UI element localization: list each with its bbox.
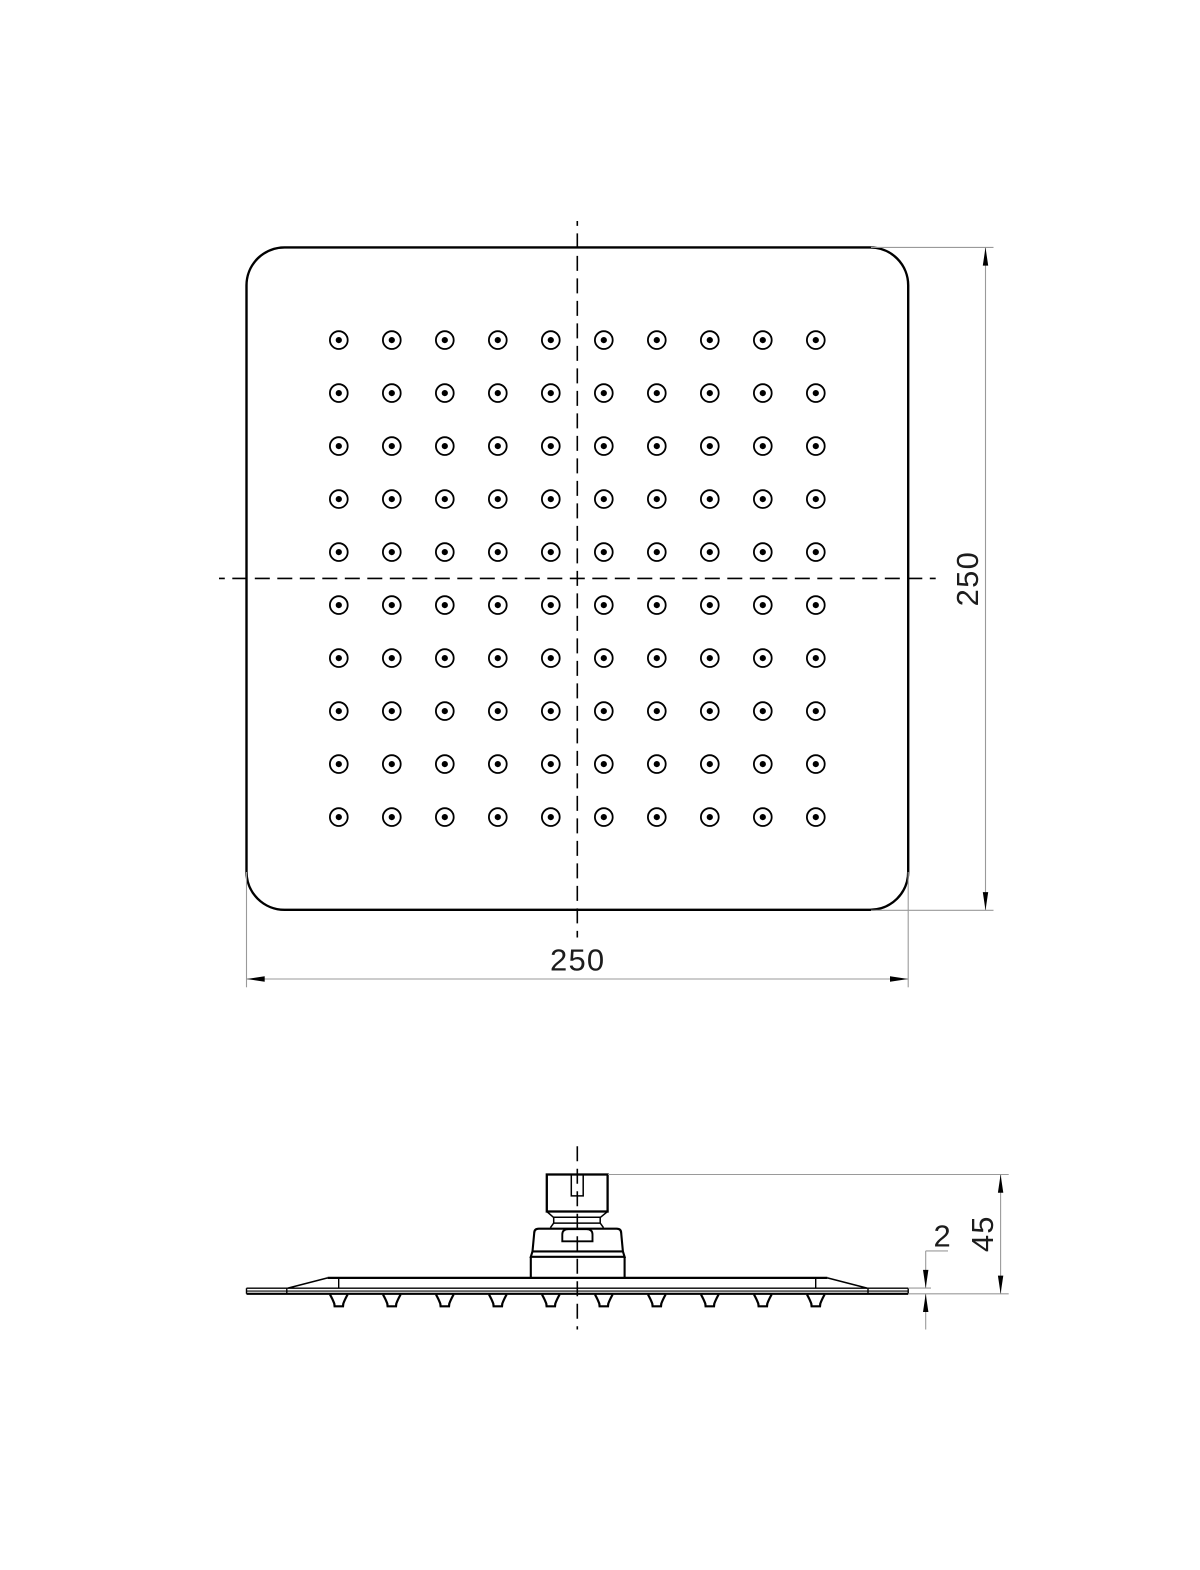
svg-text:45: 45 bbox=[965, 1215, 1000, 1252]
svg-text:250: 250 bbox=[950, 551, 985, 606]
svg-text:2: 2 bbox=[934, 1218, 953, 1253]
svg-text:250: 250 bbox=[550, 943, 605, 978]
